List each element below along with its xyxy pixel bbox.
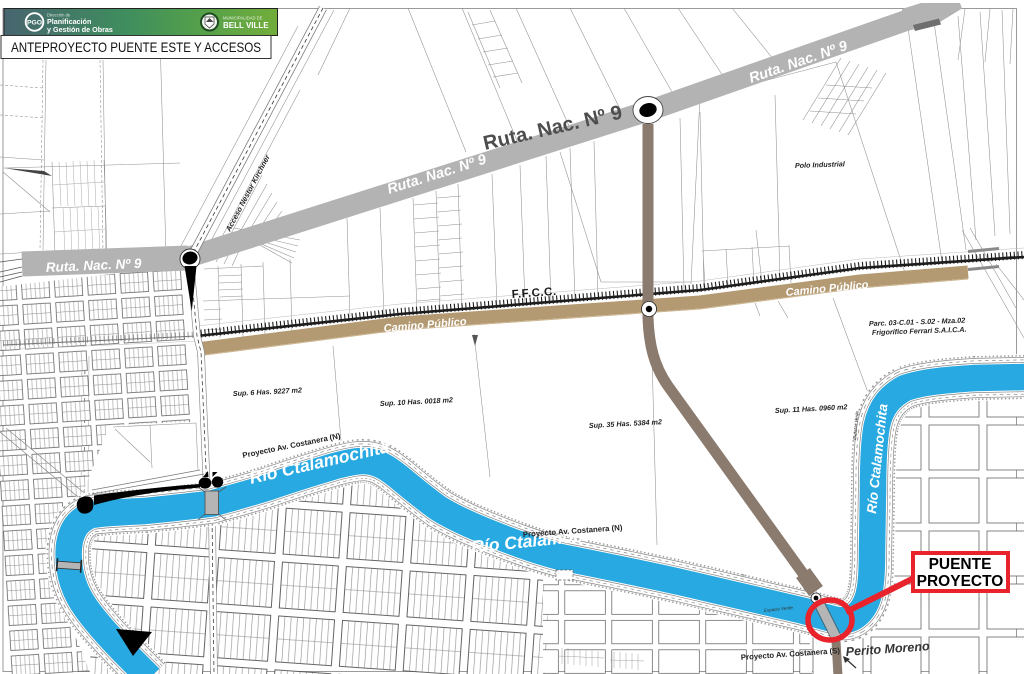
svg-text:BELL VILLE: BELL VILLE	[223, 21, 269, 30]
svg-text:Polo Industrial: Polo Industrial	[795, 159, 846, 170]
svg-text:ANTEPROYECTO PUENTE ESTE Y ACC: ANTEPROYECTO PUENTE ESTE Y ACCESOS	[11, 39, 261, 55]
svg-text:PROYECTO: PROYECTO	[917, 573, 1004, 590]
svg-text:y Gestión de Obras: y Gestión de Obras	[47, 25, 113, 34]
svg-text:PGO: PGO	[27, 20, 42, 27]
svg-text:PUENTE: PUENTE	[929, 556, 992, 573]
svg-text:MUNICIPALIDAD DE: MUNICIPALIDAD DE	[223, 16, 263, 21]
